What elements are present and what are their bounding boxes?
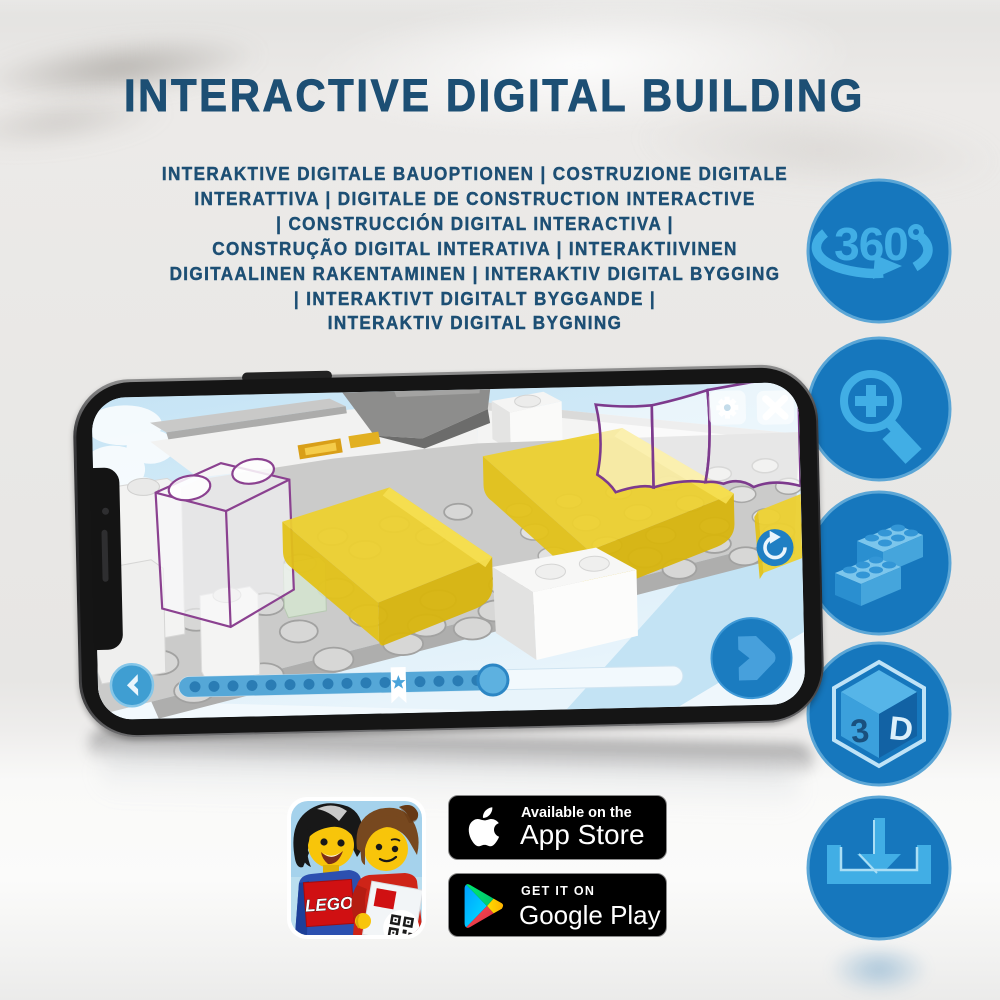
svg-text:360: 360: [834, 218, 908, 270]
svg-text:LEGO: LEGO: [304, 893, 353, 915]
svg-text:D: D: [887, 709, 915, 748]
svg-text:3: 3: [849, 711, 871, 750]
